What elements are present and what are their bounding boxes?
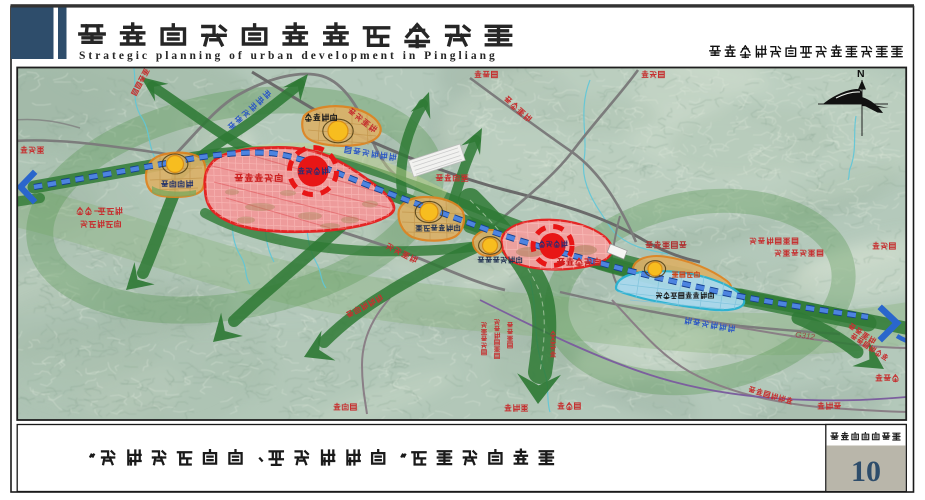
svg-text:N: N — [857, 68, 865, 80]
svg-text:Strategic planning of urban de: Strategic planning of urban development … — [79, 50, 498, 62]
svg-text:10: 10 — [851, 455, 881, 488]
